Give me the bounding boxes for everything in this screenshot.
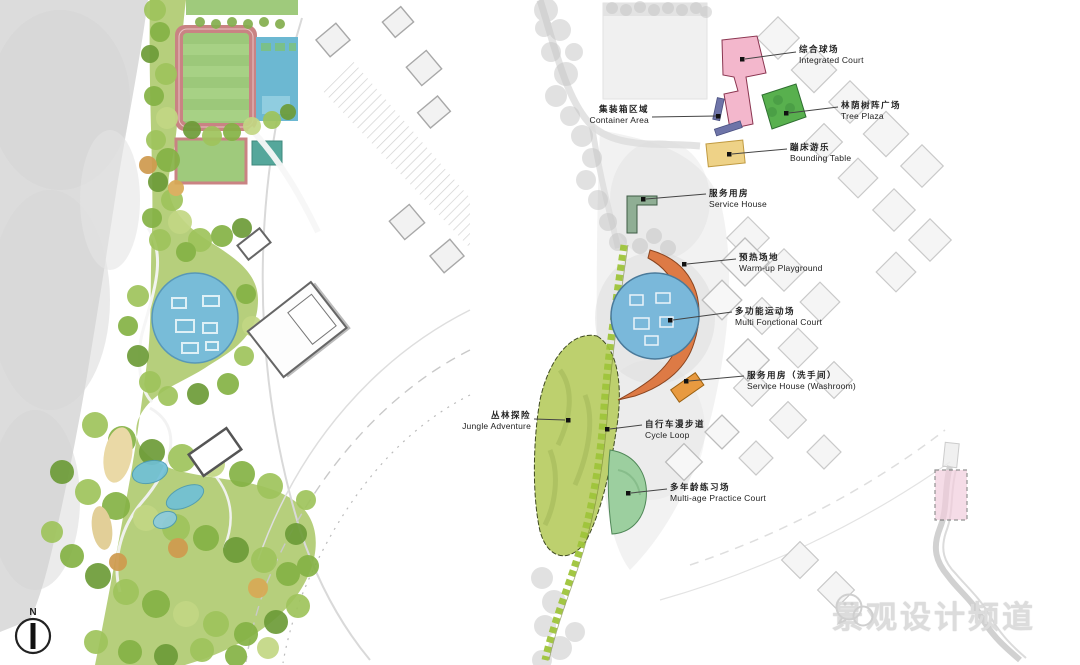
- label-en: Warm-up Playground: [739, 263, 823, 274]
- label-multi-functional-court: 多功能运动场 Multi Fonctional Court: [735, 306, 822, 327]
- label-service-house: 服务用房 Service House: [709, 188, 767, 209]
- label-en: Cycle Loop: [645, 430, 705, 441]
- label-jungle-adventure: 丛林探险 Jungle Adventure: [462, 410, 531, 431]
- label-service-house-washroom: 服务用房（洗手间） Service House (Washroom): [747, 370, 856, 391]
- label-warm-up-playground: 预热场地 Warm-up Playground: [739, 252, 823, 273]
- label-en: Service House (Washroom): [747, 381, 856, 392]
- site-plan-canvas: N: [0, 0, 1080, 665]
- label-bounding-table: 蹦床游乐 Bounding Table: [790, 142, 851, 163]
- label-en: Multi-age Practice Court: [670, 493, 766, 504]
- wechat-icon: [832, 592, 878, 634]
- label-en: Jungle Adventure: [462, 421, 531, 432]
- label-zh: 蹦床游乐: [790, 142, 851, 153]
- plans-svg: N: [0, 0, 1080, 665]
- label-zh: 预热场地: [739, 252, 823, 263]
- label-zh: 服务用房（洗手间）: [747, 370, 856, 381]
- zone-multi-functional-court: [611, 273, 699, 359]
- label-zh: 多年龄练习场: [670, 482, 766, 493]
- label-container-area: 集装箱区域 Container Area: [589, 104, 649, 125]
- faint-field: [603, 3, 707, 99]
- left-master-plan: N: [0, 0, 470, 665]
- circular-court: [152, 273, 238, 363]
- label-zh: 综合球场: [799, 44, 864, 55]
- label-en: Multi Fonctional Court: [735, 317, 822, 328]
- label-cycle-loop: 自行车漫步道 Cycle Loop: [645, 419, 705, 440]
- label-zh: 多功能运动场: [735, 306, 822, 317]
- label-en: Container Area: [589, 115, 649, 126]
- label-multi-age-practice-court: 多年龄练习场 Multi-age Practice Court: [670, 482, 766, 503]
- label-tree-plaza: 林荫树阵广场 Tree Plaza: [841, 100, 901, 121]
- zone-integrated-court: [722, 36, 766, 129]
- label-zh: 集装箱区域: [589, 104, 649, 115]
- label-en: Service House: [709, 199, 767, 210]
- label-en: Bounding Table: [790, 153, 851, 164]
- right-analysis-plan: [531, 0, 1026, 665]
- label-integrated-court: 综合球场 Integrated Court: [799, 44, 864, 65]
- label-zh: 自行车漫步道: [645, 419, 705, 430]
- label-en: Tree Plaza: [841, 111, 901, 122]
- zone-tree-plaza: [762, 84, 806, 129]
- label-zh: 林荫树阵广场: [841, 100, 901, 111]
- label-zh: 丛林探险: [462, 410, 531, 421]
- compass-n-label: N: [29, 607, 36, 618]
- label-en: Integrated Court: [799, 55, 864, 66]
- watermark: 景观设计频道: [832, 592, 1036, 637]
- zone-future-dashed-area: [935, 470, 967, 520]
- label-zh: 服务用房: [709, 188, 767, 199]
